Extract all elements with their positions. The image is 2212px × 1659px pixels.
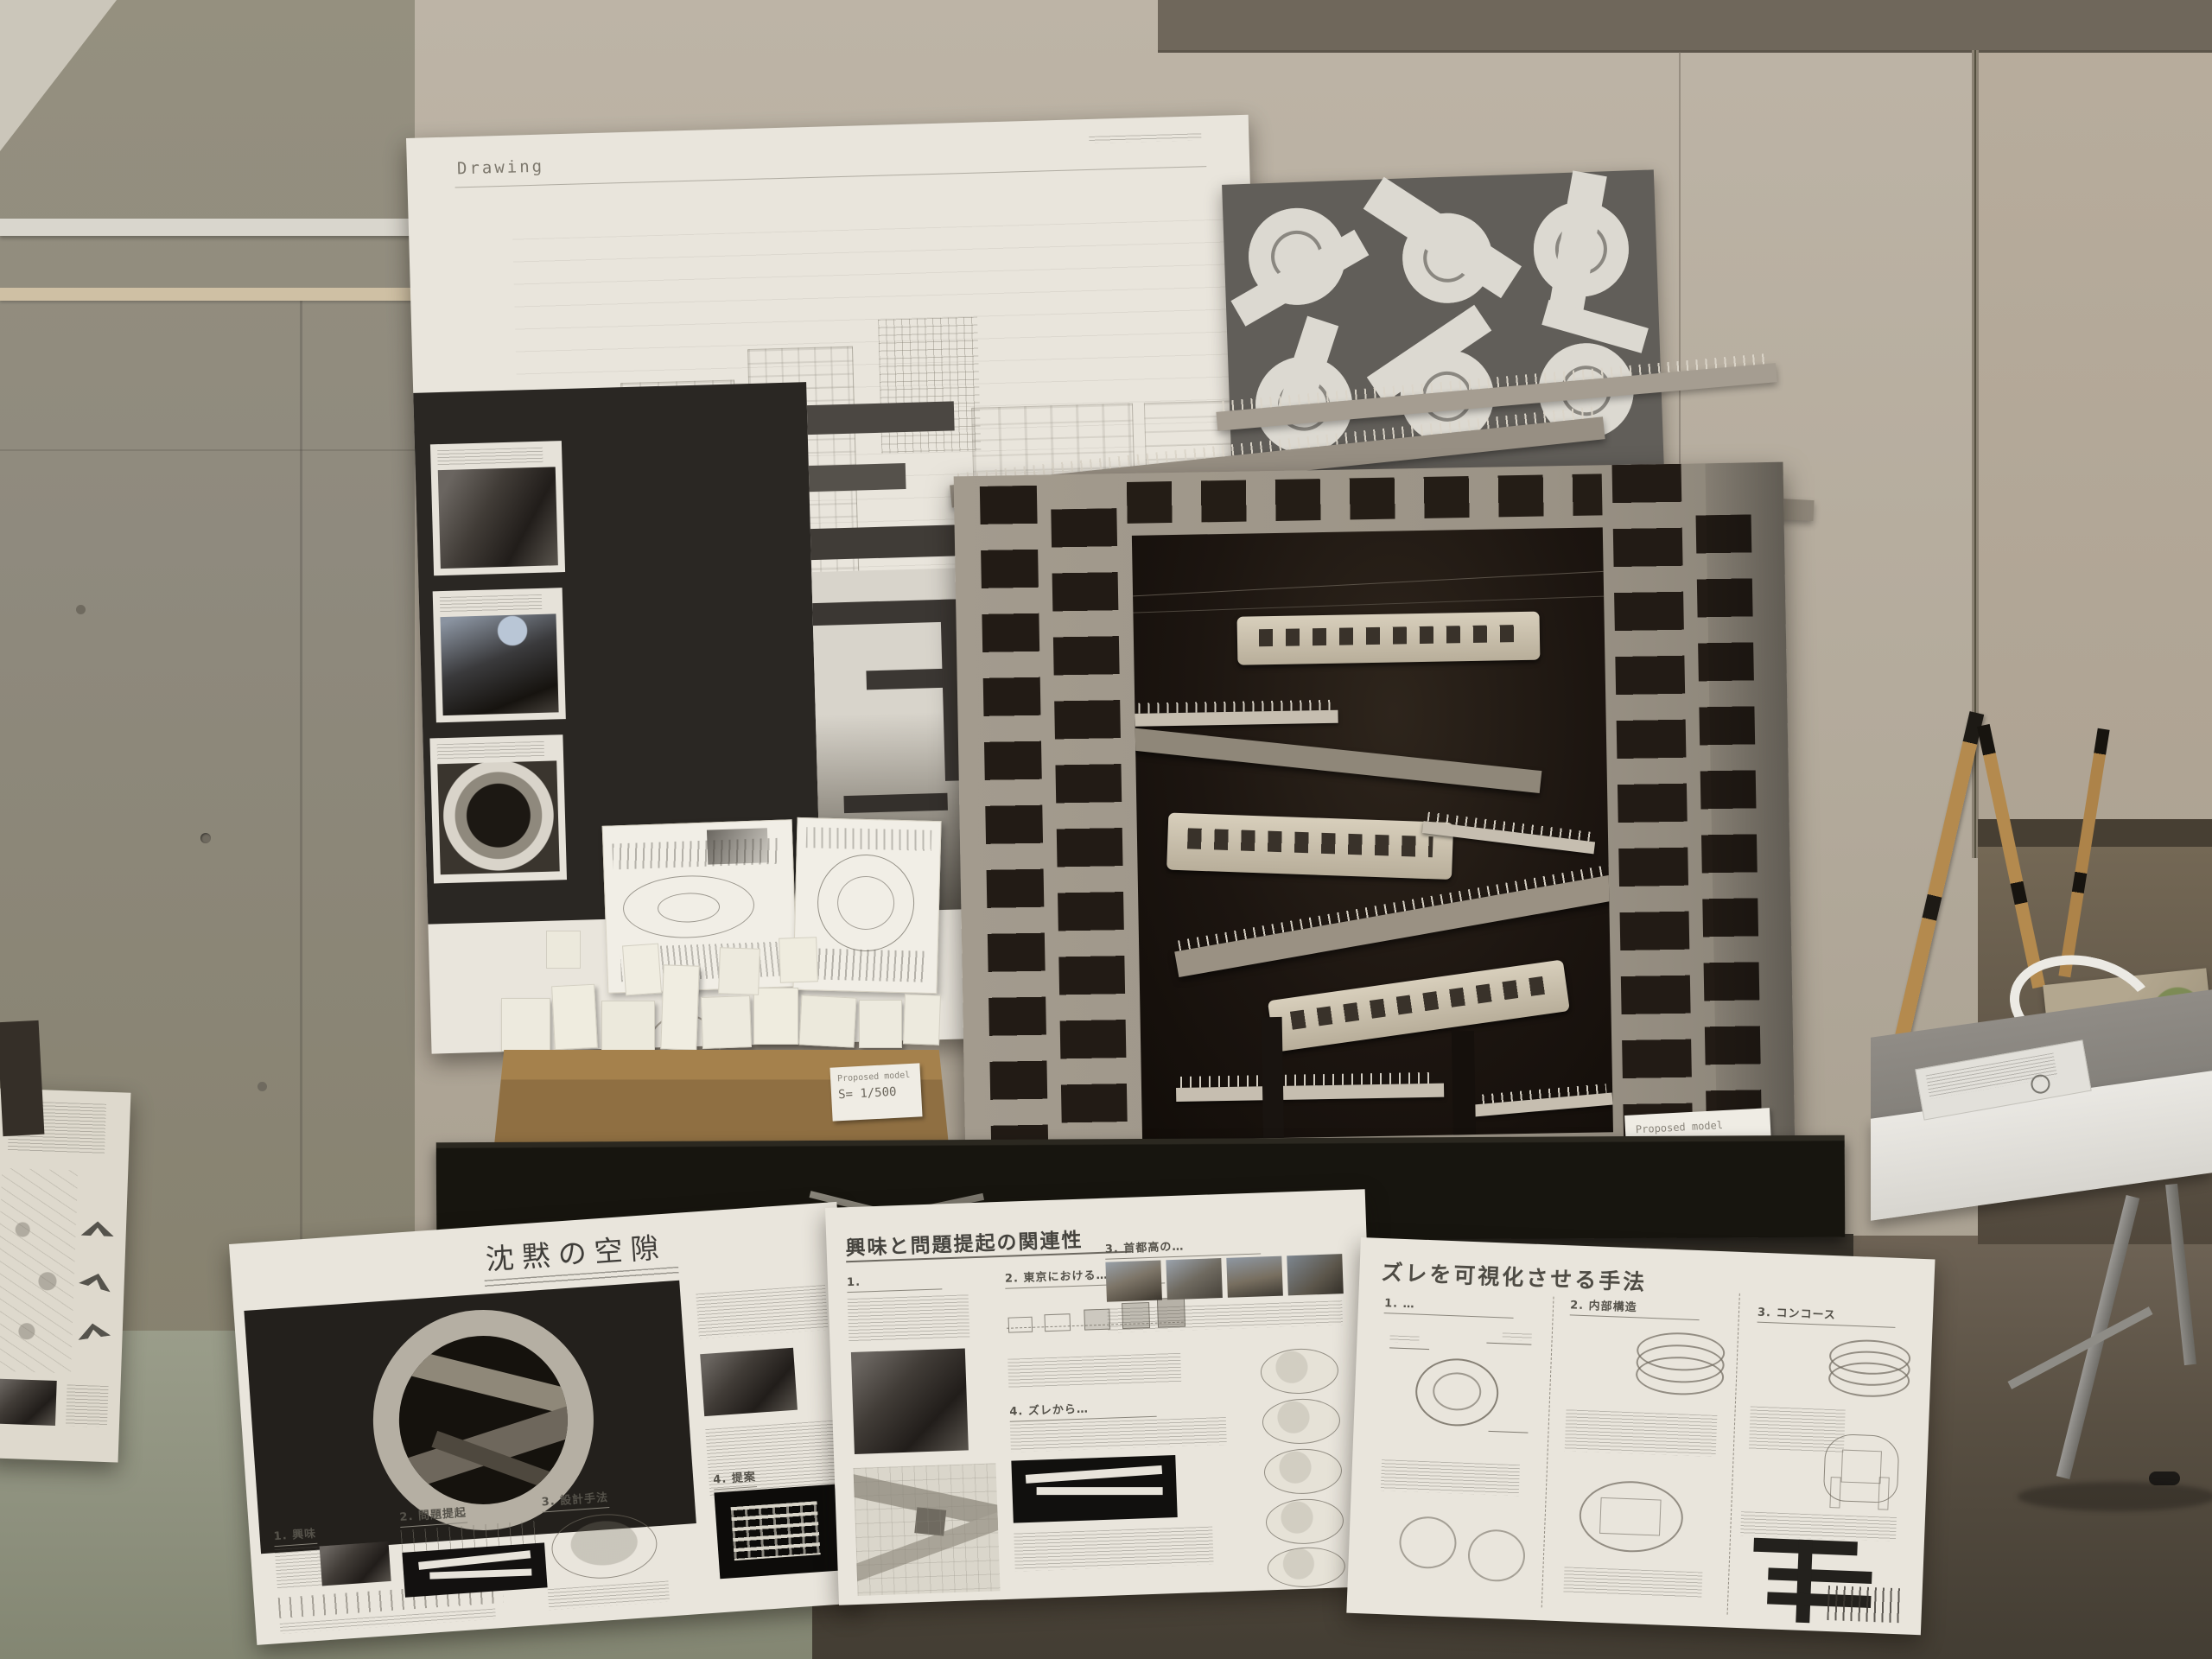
section-4: 4. 提案 xyxy=(713,1461,851,1599)
highway-photo xyxy=(1105,1260,1162,1301)
underground-diagram xyxy=(1011,1455,1177,1523)
door-panel xyxy=(1978,0,2212,855)
model-photo xyxy=(440,613,558,715)
highway-photo xyxy=(1166,1258,1223,1300)
plan-drawing xyxy=(1512,179,1650,316)
photo-card xyxy=(430,441,565,575)
chevron-arrow-icon xyxy=(76,1321,111,1346)
section-3: 3. 設計手法 xyxy=(541,1484,678,1613)
platform xyxy=(1470,1093,1613,1117)
concrete-tie-hole xyxy=(200,833,211,843)
board-interest: 興味と問題提起の関連性 1. 2. 東京における… 3. 首都高の… 4. ズレ… xyxy=(825,1189,1379,1605)
exhibition-photo: Drawing xyxy=(0,0,2212,1659)
site-map xyxy=(854,1463,1001,1596)
model-body xyxy=(954,462,1796,1211)
chevron-arrow-icon xyxy=(77,1269,114,1299)
far-left-board xyxy=(0,1088,130,1462)
small-model-label: Proposed model S= 1/500 xyxy=(829,1063,922,1121)
site-map-sketch xyxy=(0,1168,78,1374)
cylinder-plan-sketch xyxy=(1569,1472,1694,1560)
highway-photo xyxy=(1226,1256,1283,1298)
concrete-tie-hole xyxy=(76,605,86,614)
concrete-seam-v1 xyxy=(300,301,302,1338)
plan-circle-sketch xyxy=(1467,1529,1526,1582)
table-leg xyxy=(2165,1184,2196,1365)
floor-shadow xyxy=(2018,1482,2212,1511)
concrete-seam-h1 xyxy=(0,449,415,451)
overhead-wire xyxy=(1133,571,1603,597)
bold-section-diagram xyxy=(1751,1538,1905,1630)
oval-diagram xyxy=(1260,1347,1339,1395)
window-strip xyxy=(980,486,1049,1195)
window-row xyxy=(1127,474,1603,524)
plan-drawing xyxy=(1370,181,1509,321)
platform xyxy=(1135,710,1338,727)
wall-rail-wood xyxy=(0,288,416,301)
roundabout-sketch xyxy=(1386,1332,1533,1453)
void-photo xyxy=(437,760,560,874)
plan-circle-sketch xyxy=(1398,1516,1457,1569)
concrete-tie-hole xyxy=(257,1082,267,1091)
oval-diagram xyxy=(1262,1397,1341,1445)
dark-plan-image xyxy=(714,1484,841,1580)
model-train xyxy=(1237,612,1541,665)
photo-card xyxy=(429,734,567,883)
section-header: 1. xyxy=(847,1273,943,1293)
window-strip xyxy=(1612,464,1694,1182)
label-title: Proposed model xyxy=(1636,1117,1761,1136)
coil-sketch xyxy=(1631,1331,1729,1396)
title-block-caption xyxy=(1089,133,1201,143)
section-header: 3. コンコース xyxy=(1758,1303,1897,1328)
wall-top-seam xyxy=(1158,50,2212,53)
section-header: 1. … xyxy=(1384,1297,1515,1319)
oval-diagram xyxy=(1263,1447,1343,1495)
large-model: Proposed model S= 1/100 xyxy=(931,359,1818,1217)
ramp xyxy=(1132,726,1542,793)
cylinder-sketch xyxy=(550,1510,659,1581)
thumbnail-photo xyxy=(320,1541,391,1586)
overhead-wire xyxy=(1133,596,1604,613)
section-2: 2. 問題提起 xyxy=(399,1500,524,1624)
model-photo xyxy=(438,467,558,569)
wall-rail-white xyxy=(0,219,416,236)
section-header: 2. 内部構造 xyxy=(1570,1295,1700,1320)
chevron-arrow-icon xyxy=(80,1221,114,1243)
model-train xyxy=(1166,813,1453,880)
section-header: 4. ズレから… xyxy=(1009,1397,1157,1422)
drawing-board-label: Drawing xyxy=(457,157,545,179)
section-header: 3. 設計手法 xyxy=(541,1488,609,1512)
highway-photo xyxy=(1287,1254,1344,1295)
board-method: ズレを可視化させる手法 1. … 2. 内部構造 xyxy=(1346,1237,1935,1635)
board-title: ズレを可視化させる手法 xyxy=(1381,1255,1648,1297)
thumbnail-photo xyxy=(0,1378,57,1425)
board-silence: 沈黙の空隙 1. 興味 2. 問題提起 xyxy=(229,1202,865,1645)
label-scale: S= 1/500 xyxy=(838,1084,915,1103)
model-train xyxy=(1268,959,1570,1052)
label-title: Proposed model xyxy=(837,1071,913,1084)
dark-object xyxy=(0,1020,44,1136)
bw-photo xyxy=(851,1348,969,1454)
small-model: Proposed model S= 1/500 xyxy=(493,912,950,1179)
wall-top-dark-band xyxy=(1158,0,2212,50)
thumbnail-photo xyxy=(700,1348,798,1416)
platform xyxy=(1176,1084,1444,1102)
model-cutaway xyxy=(1132,527,1613,1140)
section-1: 1. 興味 xyxy=(273,1519,397,1635)
plan-drawing xyxy=(1230,190,1369,326)
fortress-sketch xyxy=(1817,1427,1907,1513)
oval-diagram xyxy=(1265,1497,1344,1545)
oval-diagram xyxy=(1267,1546,1346,1588)
coil-sketch xyxy=(1826,1338,1914,1399)
pillar xyxy=(1262,1017,1284,1138)
section-header: 3. 首都高の… xyxy=(1104,1234,1261,1259)
section-header: 4. 提案 xyxy=(713,1467,757,1490)
section-header: 1. 興味 xyxy=(273,1524,317,1547)
section-header: 2. 問題提起 xyxy=(399,1503,467,1528)
window-strip xyxy=(1051,508,1128,1192)
pillar xyxy=(1452,1031,1476,1135)
photo-card xyxy=(433,588,566,722)
